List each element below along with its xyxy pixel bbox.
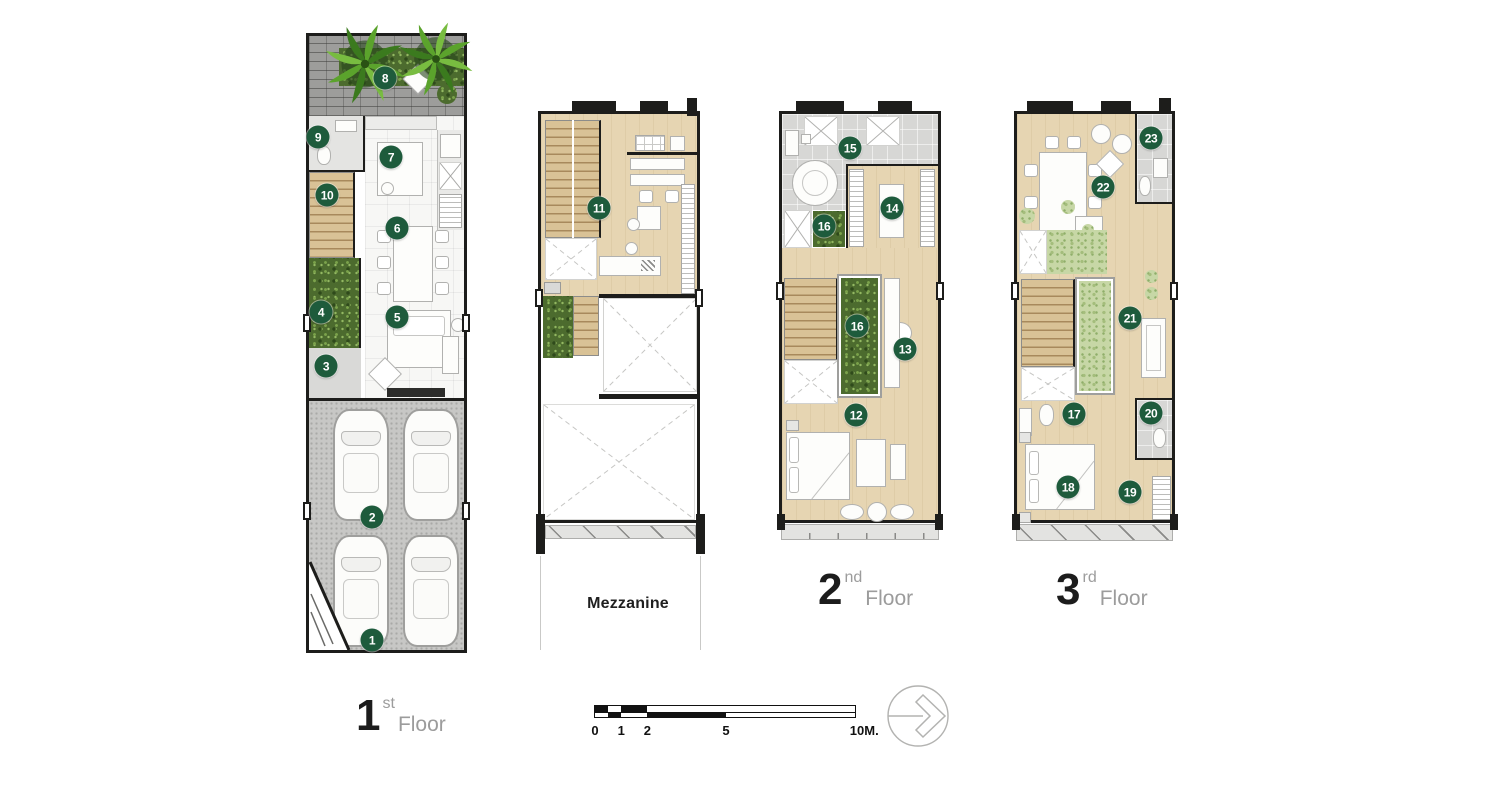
clerestory-wall (640, 101, 668, 111)
column-post (777, 514, 785, 530)
scale-tick-label: 1 (618, 723, 625, 738)
tv-console (387, 388, 445, 397)
column (776, 282, 784, 300)
column-post (1012, 514, 1020, 530)
dining-chair (435, 282, 449, 295)
palm-plant-icon (397, 20, 475, 98)
dining-chair (1024, 164, 1038, 177)
car (403, 535, 459, 647)
basin (801, 134, 811, 144)
xsvg (787, 433, 849, 499)
stair-rail (572, 120, 574, 238)
column (462, 314, 470, 332)
stool (627, 218, 640, 231)
room-marker-18: 18 (1057, 476, 1080, 499)
scale-bar-segment (621, 706, 647, 712)
room-marker-14: 14 (881, 197, 904, 220)
floor-plan-sheet: 1 st Floor Mezzanine 2 nd Floor 3 rd Flo… (0, 0, 1500, 785)
xsvg (604, 299, 696, 391)
guide-line (540, 556, 541, 650)
room-marker-20: 20 (1140, 402, 1163, 425)
room-marker-19: 19 (1119, 481, 1142, 504)
pouf (890, 504, 914, 520)
shower-stall (866, 116, 900, 146)
floor-number: 3 (1056, 572, 1080, 608)
void-opening (1019, 230, 1047, 274)
room-marker-21: 21 (1119, 307, 1142, 330)
car-roof (343, 453, 379, 493)
scale-tick-label: 10M. (850, 723, 879, 738)
kitchen-sink (440, 134, 461, 158)
decoration (1020, 231, 1046, 273)
car-windshield (411, 557, 451, 572)
lounge-bench (856, 439, 886, 487)
work-table (637, 206, 661, 230)
toilet (1039, 404, 1054, 426)
kitchen-counter-top (365, 116, 437, 130)
stove (439, 162, 462, 190)
xsvg (785, 361, 837, 403)
north-arrow-icon (885, 683, 951, 749)
scale-bar-segment (647, 712, 726, 718)
xsvg (440, 163, 461, 189)
decoration (604, 299, 696, 391)
floor-word: Floor (398, 713, 446, 737)
dining-chair (435, 230, 449, 243)
floor-ordinal: rd (1082, 569, 1096, 587)
car-windshield (341, 431, 381, 446)
column (1011, 282, 1019, 300)
room-marker-2: 2 (361, 506, 384, 529)
basin (1153, 158, 1168, 178)
staircase (784, 278, 838, 360)
first-floor-label: 1 st Floor (356, 698, 446, 737)
decoration (785, 211, 810, 247)
column (936, 282, 944, 300)
cabinet (670, 136, 685, 151)
column (303, 502, 311, 520)
xsvg (546, 239, 596, 279)
decoration (361, 60, 369, 68)
scale-tick-label: 5 (722, 723, 729, 738)
room-marker-15: 15 (839, 137, 862, 160)
room-marker-22: 22 (1092, 176, 1115, 199)
car (333, 409, 389, 521)
double-height-void (543, 404, 695, 520)
column-post (696, 514, 705, 554)
bed (786, 432, 850, 500)
plan-third-floor (1014, 111, 1175, 523)
lounge-chair (1112, 134, 1132, 154)
floor-word: Floor (865, 587, 913, 611)
column (462, 502, 470, 520)
kitchen-cabinet (439, 194, 462, 228)
scale-bar-segment (595, 706, 608, 712)
desk (630, 158, 685, 170)
island-sink (381, 182, 394, 195)
room-marker-23: 23 (1140, 127, 1163, 150)
sink (335, 120, 357, 132)
staircase (1021, 279, 1075, 367)
pouf (840, 504, 864, 520)
laptop-icon (641, 260, 655, 271)
decoration (440, 163, 461, 189)
stair-void (784, 360, 838, 404)
driveway-entry (309, 554, 355, 650)
floor-word: Floor (1100, 587, 1148, 611)
vertical-garden (1079, 281, 1111, 391)
shower-stall (784, 210, 811, 248)
garden-patch (1047, 230, 1107, 274)
room-marker-8: 8 (374, 67, 397, 90)
appliance (544, 282, 561, 294)
toilet (1153, 428, 1166, 448)
wardrobe (849, 169, 864, 247)
garden-steps (573, 296, 599, 356)
floor-number: 2 (818, 572, 842, 608)
desk-chair (639, 190, 653, 203)
xsvg (867, 117, 899, 145)
scale-bar: 012510M. (594, 705, 856, 718)
nightstand (1019, 432, 1031, 443)
car (403, 409, 459, 521)
dining-chair (435, 256, 449, 269)
room-marker-11: 11 (588, 197, 611, 220)
stair-void (1021, 367, 1075, 401)
column (1170, 282, 1178, 300)
third-floor-label: 3 rd Floor (1056, 572, 1148, 611)
chaise (442, 336, 459, 374)
plant-pot-icon (1019, 208, 1035, 224)
void-edge-wall (599, 394, 697, 399)
canopy-band (545, 525, 696, 539)
decoration (546, 239, 596, 279)
scale-bar-segment (608, 712, 621, 718)
column (535, 289, 543, 307)
xsvg (544, 405, 694, 519)
tall-cabinet (1141, 318, 1166, 378)
wall-stub (687, 98, 697, 116)
desk-chair (665, 190, 679, 203)
floor-ordinal: st (382, 695, 394, 713)
car-windshield (411, 431, 451, 446)
decoration (544, 405, 694, 519)
vanity (785, 130, 799, 156)
car-roof (413, 453, 449, 493)
decoration (785, 361, 837, 403)
decoration (812, 453, 849, 499)
stool (625, 242, 638, 255)
column-post (536, 514, 545, 554)
lounge-chair (1091, 124, 1111, 144)
column-post (1170, 514, 1178, 530)
shelf-unit (635, 135, 665, 151)
scale-tick-label: 2 (644, 723, 651, 738)
clerestory-wall (1027, 101, 1073, 111)
decoration (1022, 368, 1074, 400)
floor-number: 1 (356, 698, 380, 734)
bathtub-inner (802, 170, 828, 196)
stair-garden (543, 296, 573, 358)
plan-first-floor (306, 33, 467, 653)
room-marker-3: 3 (315, 355, 338, 378)
dining-chair (1045, 136, 1059, 149)
floor-ordinal: nd (844, 569, 862, 587)
clerestory-wall (796, 101, 844, 111)
mezzanine-label: Mezzanine (568, 595, 688, 613)
room-marker-5: 5 (386, 306, 409, 329)
plan-mezzanine (538, 111, 700, 523)
palm-plant-icon (323, 22, 407, 106)
xsvg (1022, 368, 1074, 400)
cabinet-door (1146, 325, 1161, 371)
column-post (935, 514, 943, 530)
guide-line (700, 556, 701, 650)
wardrobe (920, 169, 935, 247)
car-roof (413, 579, 449, 619)
plant-ornament-icon (1145, 287, 1158, 300)
room-marker-10: 10 (316, 184, 339, 207)
decoration (867, 117, 899, 145)
dining-chair (1067, 136, 1081, 149)
stair-landing (545, 238, 597, 280)
side-table (890, 444, 906, 480)
room-marker-12: 12 (845, 404, 868, 427)
balcony (781, 524, 939, 540)
column (695, 289, 703, 307)
plant-ornament-icon (1145, 270, 1158, 283)
plant-pot-icon (1061, 200, 1075, 214)
room-marker-4: 4 (310, 301, 333, 324)
room-marker-16: 16 (846, 315, 869, 338)
room-marker-7: 7 (380, 146, 403, 169)
room-marker-9: 9 (307, 126, 330, 149)
toilet (317, 146, 331, 165)
wardrobe (1152, 476, 1171, 520)
room-marker-17: 17 (1063, 403, 1086, 426)
room-marker-16: 16 (813, 215, 836, 238)
dining-chair (377, 282, 391, 295)
nightstand (786, 420, 799, 431)
nightstand (1019, 512, 1031, 523)
roof-terrace-band (1016, 524, 1173, 541)
planter-box (1075, 277, 1115, 395)
toilet (1139, 176, 1151, 196)
dining-chair (377, 256, 391, 269)
clerestory-wall (1101, 101, 1131, 111)
bookshelf (681, 184, 695, 294)
void-opening (603, 298, 697, 392)
room-marker-13: 13 (894, 338, 917, 361)
decoration (432, 55, 440, 63)
scale-tick-label: 0 (591, 723, 598, 738)
partition-wall (627, 152, 697, 155)
second-floor-label: 2 nd Floor (818, 572, 913, 611)
room-marker-1: 1 (361, 629, 384, 652)
console-shelf (884, 278, 900, 388)
clerestory-wall (572, 101, 616, 111)
xsvg (785, 211, 810, 247)
xsvg (1020, 231, 1046, 273)
clerestory-wall (878, 101, 912, 111)
pouf (867, 502, 887, 522)
desk (630, 174, 685, 186)
room-marker-6: 6 (386, 217, 409, 240)
